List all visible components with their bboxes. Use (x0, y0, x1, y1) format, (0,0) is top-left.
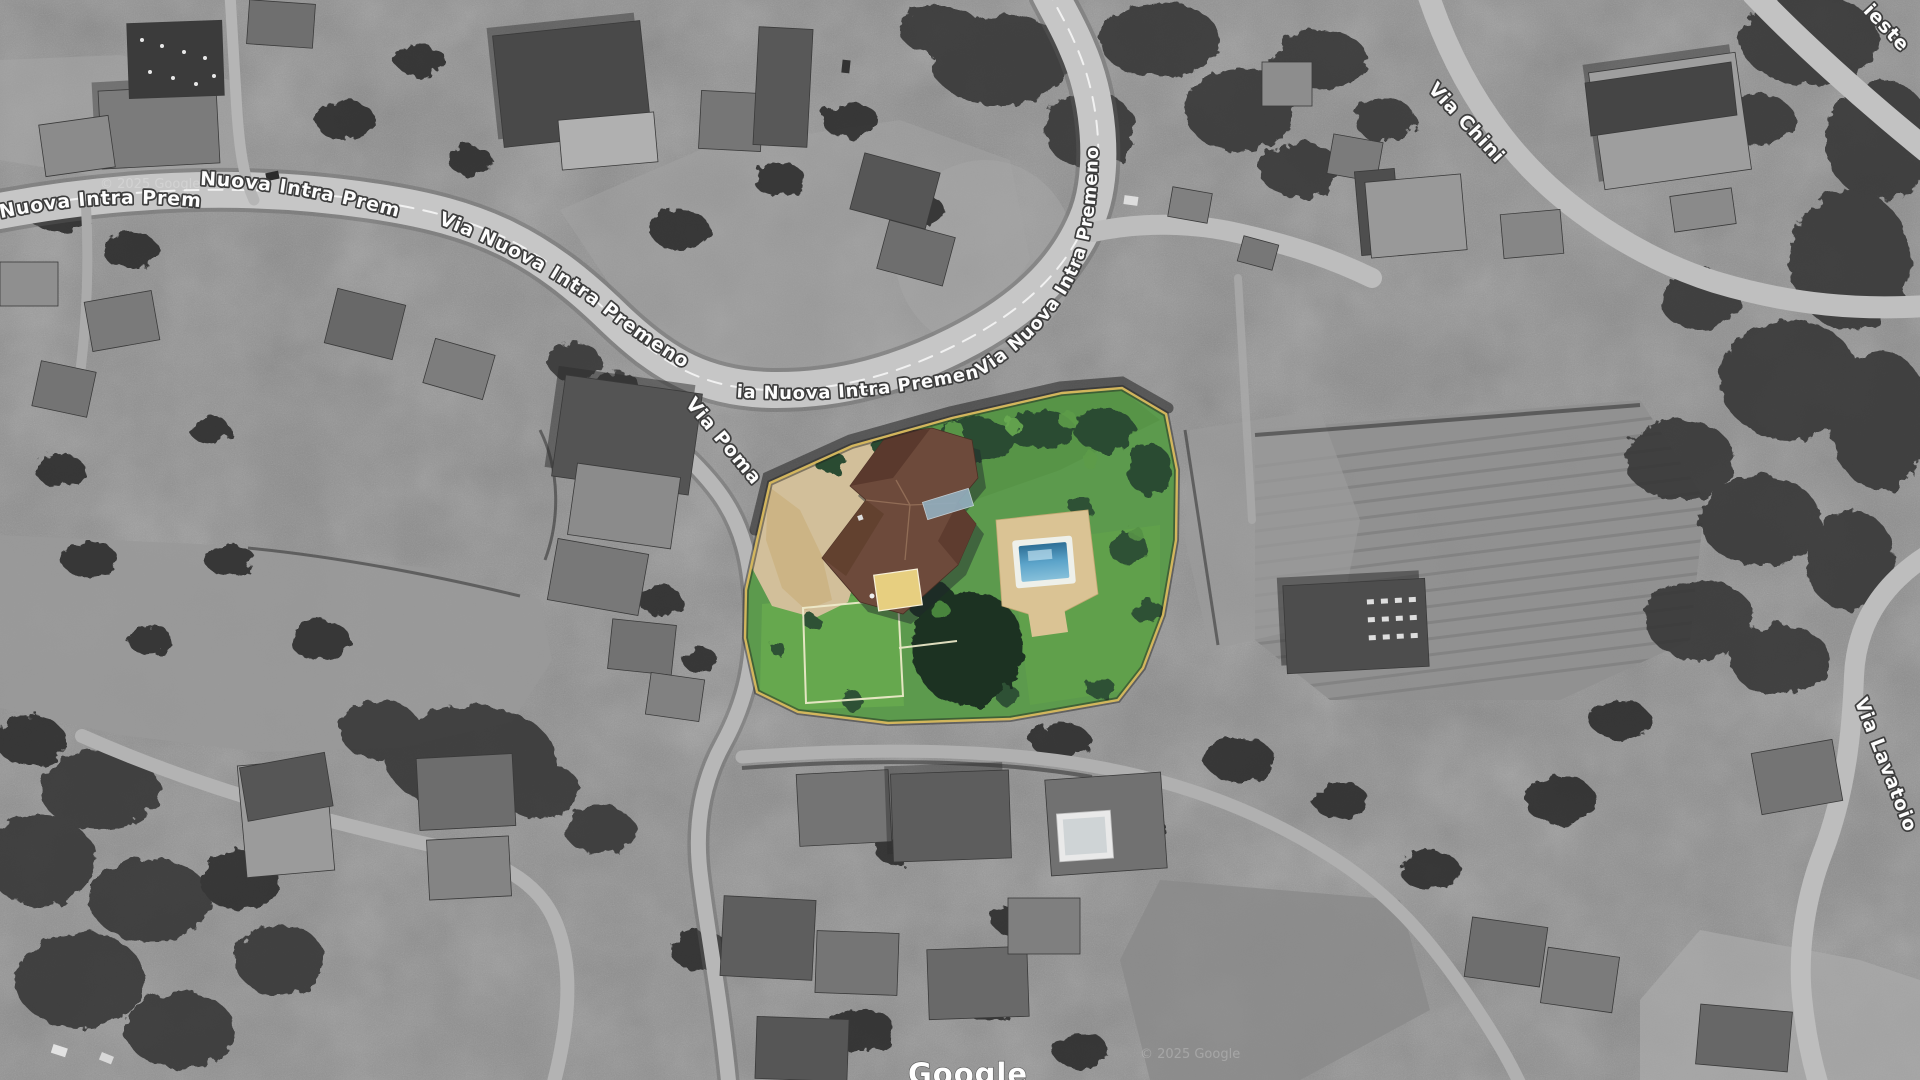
satellite-map-canvas[interactable]: Via Nuova Intra Premeno Via Nuova Intra … (0, 0, 1920, 1080)
google-logo-watermark[interactable]: Google (908, 1057, 1028, 1080)
copyright-text-top-left: © 2025 Google (100, 177, 200, 192)
copyright-text-bottom: © 2025 Google (1140, 1047, 1240, 1062)
satellite-map-viewport: Via Nuova Intra Premeno Via Nuova Intra … (0, 0, 1920, 1080)
parcel-house-patio (874, 569, 923, 611)
pool-water (1019, 542, 1070, 582)
